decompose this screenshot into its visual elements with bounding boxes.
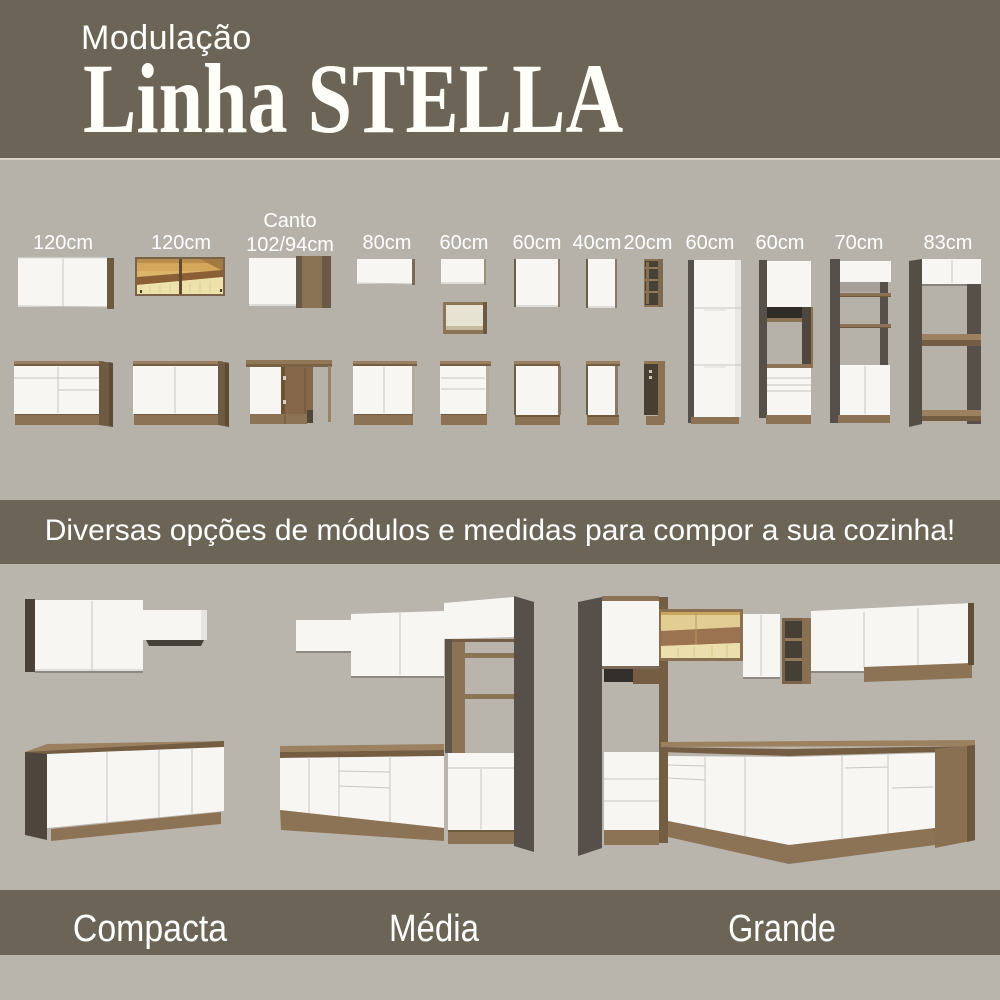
svg-text:120cm: 120cm <box>151 232 211 254</box>
svg-text:Canto: Canto <box>263 210 316 232</box>
svg-text:83cm: 83cm <box>924 232 973 254</box>
svg-text:60cm: 60cm <box>756 232 805 254</box>
svg-text:60cm: 60cm <box>513 232 562 254</box>
svg-text:40cm: 40cm <box>573 232 622 254</box>
svg-text:70cm: 70cm <box>835 232 884 254</box>
svg-text:60cm: 60cm <box>686 232 735 254</box>
svg-text:80cm: 80cm <box>363 232 412 254</box>
svg-text:102/94cm: 102/94cm <box>246 234 334 256</box>
svg-text:60cm: 60cm <box>440 232 489 254</box>
svg-text:20cm: 20cm <box>624 232 673 254</box>
svg-text:120cm: 120cm <box>33 232 93 254</box>
